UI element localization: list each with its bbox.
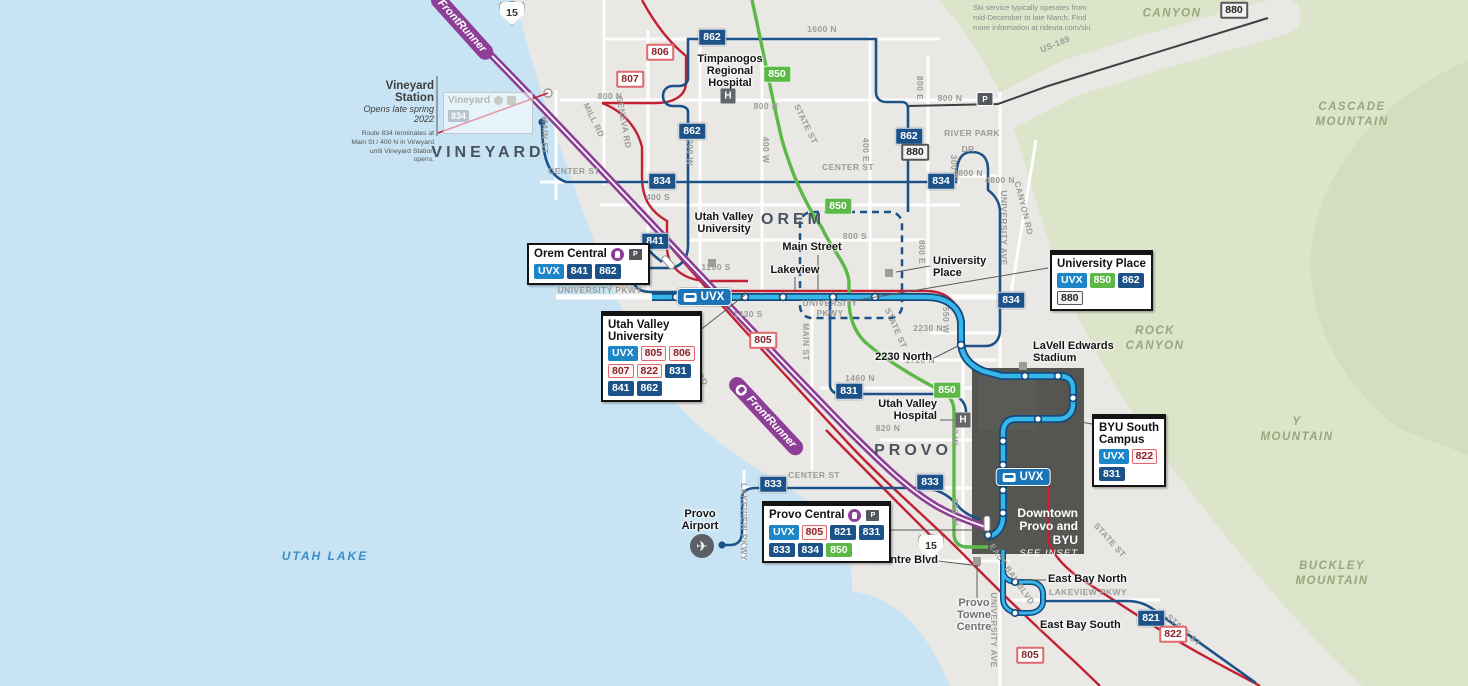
station-box-badge-row: UVX850862 — [1057, 273, 1146, 288]
station-info-box: University PlaceUVX850862880 — [1050, 250, 1153, 311]
route-badge-880: 880 — [901, 144, 929, 161]
hospital-icon: H — [956, 413, 971, 428]
route-badge-822: 822 — [1159, 626, 1187, 643]
station-box-badge-row: 833834850 — [769, 543, 884, 558]
ski-service-note: Ski service typically operates from mid-… — [973, 3, 1101, 32]
route-badge-806: 806 — [669, 346, 695, 361]
station-box-title: University Place — [1057, 258, 1146, 270]
poi-square-icon — [1019, 362, 1027, 370]
station-box-title-text: BYU South Campus — [1099, 422, 1159, 446]
transit-map: Ski service typically operates from mid-… — [0, 0, 1468, 686]
bus-icon — [1003, 473, 1016, 482]
city-label: PROVO — [874, 442, 952, 460]
ghost-frontrunner-icon — [494, 96, 503, 105]
frontrunner-icon — [611, 248, 624, 261]
station-label: Main Street — [782, 242, 841, 254]
station-box-badge-row: UVX805806 — [608, 346, 695, 361]
route-badge-862: 862 — [595, 264, 621, 279]
station-box-badge-row: UVX841862 — [534, 264, 643, 279]
route-badge-834: 834 — [798, 543, 824, 558]
station-box-title: Provo CentralP — [769, 509, 884, 522]
route-badge-821: 821 — [830, 525, 856, 540]
route-badge-862: 862 — [678, 123, 706, 140]
route-badge-841: 841 — [608, 381, 634, 396]
station-box-title: BYU South Campus — [1099, 422, 1159, 446]
ghost-route-badge: 834 — [448, 110, 469, 122]
station-label: Timpanogos Regional Hospital — [697, 54, 762, 90]
route-badge-834: 834 — [927, 173, 955, 190]
ghost-station-label: Vineyard — [448, 95, 490, 106]
route-badge-850: 850 — [933, 382, 961, 399]
uvx-route-badge: UVX — [996, 468, 1051, 486]
vineyard-note-title: Vineyard Station — [348, 80, 434, 104]
route-badge-UVX: UVX — [608, 346, 638, 361]
route-badge-841: 841 — [567, 264, 593, 279]
vineyard-note-body: Route 834 terminates at Main St / 400 N … — [348, 130, 434, 165]
route-badge-862: 862 — [637, 381, 663, 396]
station-box-badge-row: UVX805821831 — [769, 525, 884, 540]
hospital-icon: H — [721, 89, 736, 104]
bus-icon — [684, 293, 697, 302]
station-box-badge-row: UVX822 — [1099, 449, 1159, 464]
terrain-label: ROCK CANYON — [1126, 324, 1185, 354]
station-label: Utah Valley Hospital — [878, 399, 937, 423]
station-label: Lakeview — [771, 265, 820, 277]
vineyard-note-subtitle: Opens late spring 2022 — [348, 104, 434, 124]
station-box-title: Orem CentralP — [534, 248, 643, 261]
route-badge-850: 850 — [763, 66, 791, 83]
station-box-badge-row: 831 — [1099, 467, 1159, 482]
station-box-title-text: University Place — [1057, 258, 1146, 270]
frontrunner-icon — [848, 509, 861, 522]
route-badge-807: 807 — [616, 71, 644, 88]
route-badge-UVX: UVX — [1099, 449, 1129, 464]
station-info-box: Orem CentralPUVX841862 — [527, 243, 650, 285]
station-info-box: Utah Valley UniversityUVX805806807822831… — [601, 311, 702, 402]
station-label: Utah Valley University — [695, 212, 754, 236]
terrain-label: BUCKLEY MOUNTAIN — [1295, 559, 1368, 589]
route-badge-UVX: UVX — [534, 264, 564, 279]
station-label: University Place — [933, 256, 986, 280]
station-box-badge-row: 807822831 — [608, 364, 695, 379]
inset-see-note: SEE INSET — [1002, 549, 1078, 559]
route-badge-822: 822 — [637, 364, 663, 379]
lake-label: UTAH LAKE — [282, 549, 368, 565]
station-box-title: Utah Valley University — [608, 319, 695, 343]
poi-square-icon — [708, 259, 716, 267]
route-badge-834: 834 — [997, 292, 1025, 309]
terrain-label: CANYON — [1143, 7, 1202, 22]
vineyard-station-note: Vineyard Station Opens late spring 2022 … — [348, 80, 434, 165]
route-badge-834: 834 — [648, 173, 676, 190]
station-info-box: BYU South CampusUVX822831 — [1092, 414, 1166, 487]
route-badge-UVX: UVX — [769, 525, 799, 540]
station-label: East Bay North — [1048, 574, 1127, 586]
frontrunner-icon — [734, 382, 750, 398]
park-and-ride-icon: P — [977, 92, 994, 106]
station-label: 2230 North — [875, 352, 932, 364]
route-badge-805: 805 — [641, 346, 667, 361]
uvx-badge-label: UVX — [1020, 471, 1044, 483]
route-badge-833: 833 — [769, 543, 795, 558]
route-badge-880: 880 — [1057, 291, 1083, 306]
route-badge-806: 806 — [646, 44, 674, 61]
station-box-badge-row: 841862 — [608, 381, 695, 396]
ghost-parkride-icon — [507, 96, 516, 105]
route-badge-831: 831 — [665, 364, 691, 379]
station-label: LaVell Edwards Stadium — [1033, 341, 1114, 365]
terrain-label: Y MOUNTAIN — [1260, 415, 1333, 445]
poi-square-icon — [885, 269, 893, 277]
route-badge-805: 805 — [802, 525, 828, 540]
station-label: Provo Airport — [682, 509, 719, 533]
route-badge-850: 850 — [1090, 273, 1116, 288]
station-info-box: Provo CentralPUVX805821831833834850 — [762, 501, 891, 563]
route-badge-805: 805 — [749, 332, 777, 349]
poi-square-icon — [973, 557, 981, 565]
station-box-title-text: Provo Central — [769, 509, 844, 521]
route-badge-831: 831 — [859, 525, 885, 540]
station-box-title-text: Orem Central — [534, 248, 607, 260]
station-box-badge-row: 880 — [1057, 291, 1146, 306]
route-badge-862: 862 — [895, 128, 923, 145]
route-badge-807: 807 — [608, 364, 634, 379]
route-badge-850: 850 — [824, 198, 852, 215]
route-badge-850: 850 — [826, 543, 852, 558]
downtown-inset-label: Downtown Provo and BYU SEE INSET — [1002, 494, 1078, 572]
route-badge-822: 822 — [1132, 449, 1158, 464]
station-label: East Bay South — [1040, 620, 1121, 632]
terrain-label: CASCADE MOUNTAIN — [1315, 100, 1388, 130]
route-badge-833: 833 — [759, 476, 787, 493]
uvx-badge-label: UVX — [701, 291, 725, 303]
route-badge-833: 833 — [916, 474, 944, 491]
vineyard-future-station-box: Vineyard 834 — [443, 92, 533, 134]
route-badge-880: 880 — [1220, 2, 1248, 19]
route-badge-831: 831 — [835, 383, 863, 400]
airport-icon: ✈ — [690, 534, 714, 558]
route-badge-805: 805 — [1016, 647, 1044, 664]
route-badge-831: 831 — [1099, 467, 1125, 482]
route-badge-821: 821 — [1137, 610, 1165, 627]
city-label: VINEYARD — [431, 144, 544, 162]
route-badge-862: 862 — [1118, 273, 1144, 288]
park-and-ride-icon: P — [628, 248, 643, 261]
city-label: OREM — [761, 211, 825, 229]
park-and-ride-icon: P — [865, 509, 880, 522]
station-box-title-text: Utah Valley University — [608, 319, 669, 343]
station-label: Provo Towne Centre — [957, 598, 992, 634]
route-badge-UVX: UVX — [1057, 273, 1087, 288]
inset-title: Downtown Provo and BYU — [1017, 506, 1078, 546]
route-badge-862: 862 — [698, 29, 726, 46]
uvx-route-badge: UVX — [677, 288, 732, 306]
